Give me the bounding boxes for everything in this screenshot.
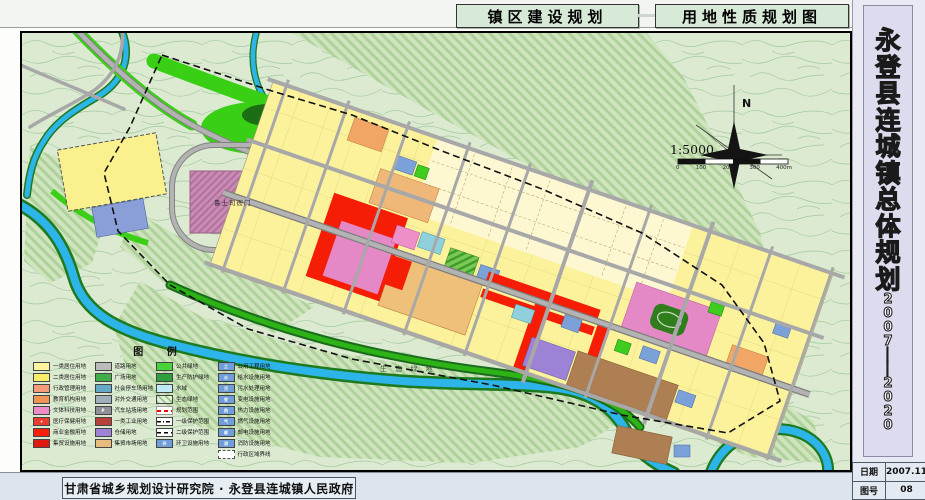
- legend-item: 商业金融用地: [33, 427, 93, 438]
- legend-item-label: 给水设施用地: [238, 375, 271, 381]
- legend-swatch-mark: 消: [224, 442, 228, 446]
- eco-green-label: 生 态 绿 地: [380, 364, 436, 373]
- legend-swatch: [33, 384, 50, 393]
- sidebar-title-char: 体: [875, 214, 900, 241]
- title-tab2-label: 用地性质规划图: [682, 6, 822, 27]
- legend-item: 消消防设施用地: [218, 438, 278, 449]
- legend-item-label: 集贸市场用地: [115, 441, 148, 447]
- legend-item: 生产防护绿地: [156, 372, 216, 383]
- sidebar-year-char: 0: [883, 321, 892, 335]
- date-value: 2007.11: [886, 463, 925, 481]
- sidebar-title-char: 县: [875, 81, 900, 108]
- sidebar-year-char: 2: [883, 405, 892, 419]
- scalebar-tick-label: 200: [723, 165, 734, 171]
- legend-item-label: 公共绿地: [176, 364, 198, 370]
- legend-item-label: 汽车站场用地: [115, 408, 148, 414]
- legend-item: 一级保护范围: [156, 416, 216, 427]
- legend-swatch: [33, 439, 50, 448]
- legend-item: 水域: [156, 383, 216, 394]
- legend-swatch: [33, 373, 50, 382]
- yamen-label: 鲁土司衙门: [214, 198, 252, 207]
- legend-swatch: +: [33, 417, 50, 426]
- legend-item-label: 水域: [176, 386, 187, 392]
- tab-connector: [637, 14, 655, 17]
- legend-item: 对外交通用地: [95, 394, 155, 405]
- sidebar-year-char: 2: [883, 377, 892, 391]
- legend-swatch: 变: [218, 395, 235, 404]
- legend-swatch: [156, 395, 173, 404]
- legend-item-label: 规划范围: [176, 408, 198, 414]
- sidebar-year-char: 0: [883, 391, 892, 405]
- legend-item-label: 变电设施用地: [238, 397, 271, 403]
- legend-item-label: 邮电设施用地: [238, 430, 271, 436]
- sidebar-title-char: 镇: [875, 161, 900, 188]
- legend-swatch: 环: [156, 439, 173, 448]
- legend: 图 例 一类居住用地二类居住用地行政管理用地教育机构用地文体科技用地+医疗保健用…: [33, 343, 277, 460]
- legend-item-label: 行政管理用地: [53, 386, 86, 392]
- legend-item-label: 污水处理用地: [238, 386, 271, 392]
- legend-item: 行政区域界线: [218, 449, 278, 460]
- legend-swatch: [95, 439, 112, 448]
- scalebar-tick-label: 400m: [776, 165, 792, 171]
- scalebar-tick-label: 0: [676, 165, 680, 171]
- date-figure-table: 日期 2007.11 图号 08: [852, 462, 925, 500]
- drawing-title-vertical: 永登县连城镇总体规划: [875, 28, 900, 293]
- legend-swatch: [95, 362, 112, 371]
- legend-title: 图 例: [33, 343, 277, 358]
- title-tab1-label: 镇区建设规划: [487, 6, 607, 27]
- legend-column-3: 公共绿地生产防护绿地水域生态绿地规划范围一级保护范围二级保护范围环环卫设施用地: [156, 361, 216, 460]
- legend-item-label: 行政区域界线: [238, 452, 271, 458]
- legend-swatch: [156, 362, 173, 371]
- legend-swatch: 气: [218, 417, 235, 426]
- sidebar-title-char: 划: [875, 267, 900, 294]
- legend-swatch-mark: P: [102, 409, 105, 413]
- legend-swatch: [95, 428, 112, 437]
- legend-item: 水给水设施用地: [218, 372, 278, 383]
- legend-swatch-mark: 变: [224, 398, 228, 402]
- legend-item-label: 环卫设施用地: [176, 441, 209, 447]
- legend-swatch: 工: [218, 362, 235, 371]
- legend-item: 广场用地: [95, 372, 155, 383]
- legend-item-label: 二类居住用地: [53, 375, 86, 381]
- legend-swatch: [156, 417, 173, 426]
- legend-item-label: 燃气设施用地: [238, 419, 271, 425]
- legend-item-label: 商业金融用地: [53, 430, 86, 436]
- figure-number-label: 图号: [853, 482, 885, 500]
- legend-item: 集贸设施用地: [33, 438, 93, 449]
- legend-swatch: [33, 428, 50, 437]
- legend-item: 二级保护范围: [156, 427, 216, 438]
- legend-item-label: 对外交通用地: [115, 397, 148, 403]
- legend-swatch: 污: [218, 384, 235, 393]
- legend-swatch: 水: [218, 373, 235, 382]
- legend-item-label: 公用工程用地: [238, 364, 271, 370]
- legend-item-label: 一级保护范围: [176, 419, 209, 425]
- legend-swatch: 热: [218, 406, 235, 415]
- legend-swatch: [218, 450, 235, 459]
- legend-swatch: [95, 417, 112, 426]
- legend-item: 集贸市场用地: [95, 438, 155, 449]
- legend-item: 一类居住用地: [33, 361, 93, 372]
- legend-item: 行政管理用地: [33, 383, 93, 394]
- legend-item-label: 生产防护绿地: [176, 375, 209, 381]
- legend-swatch: [95, 373, 112, 382]
- legend-item: 二类居住用地: [33, 372, 93, 383]
- legend-item: 社会停车场用地: [95, 383, 155, 394]
- legend-item: 道路用地: [95, 361, 155, 372]
- legend-item: 文体科技用地: [33, 405, 93, 416]
- legend-item-label: 道路用地: [115, 364, 137, 370]
- sidebar-year-char: 0: [883, 419, 892, 433]
- legend-item: 工公用工程用地: [218, 361, 278, 372]
- scale-text: 1:5000: [670, 142, 714, 157]
- scalebar-labels: 0100200300400m: [676, 165, 792, 171]
- legend-swatch: [95, 395, 112, 404]
- legend-item-label: 一类工业用地: [115, 419, 148, 425]
- legend-swatch: P: [95, 406, 112, 415]
- legend-item: +医疗保健用地: [33, 416, 93, 427]
- sidebar-title-char: 登: [875, 55, 900, 82]
- legend-swatch: [95, 384, 112, 393]
- legend-item: 公共绿地: [156, 361, 216, 372]
- sidebar-year-char: 2: [883, 293, 892, 307]
- plan-period-vertical: 2007││2020: [883, 293, 892, 433]
- legend-item: 规划范围: [156, 405, 216, 416]
- legend-swatch: 邮: [218, 428, 235, 437]
- legend-item: 邮邮电设施用地: [218, 427, 278, 438]
- sidebar-title-char: 城: [875, 134, 900, 161]
- legend-item-label: 消防设施用地: [238, 441, 271, 447]
- title-tab-construction-plan: 镇区建设规划: [456, 4, 639, 28]
- scalebar-tick-label: 100: [696, 165, 707, 171]
- legend-item-label: 医疗保健用地: [53, 419, 86, 425]
- sidebar-title-char: 规: [875, 240, 900, 267]
- title-tab-landuse-map: 用地性质规划图: [655, 4, 849, 28]
- legend-item: 变变电设施用地: [218, 394, 278, 405]
- north-label: N: [742, 97, 751, 110]
- legend-swatch: [33, 362, 50, 371]
- legend-swatch: [156, 428, 173, 437]
- legend-column-2: 道路用地广场用地社会停车场用地对外交通用地P汽车站场用地一类工业用地仓储用地集贸…: [95, 361, 155, 460]
- legend-item-label: 热力设施用地: [238, 408, 271, 414]
- legend-swatch: [33, 395, 50, 404]
- legend-swatch-mark: 环: [163, 442, 167, 446]
- legend-column-4: 工公用工程用地水给水设施用地污污水处理用地变变电设施用地热热力设施用地气燃气设施…: [218, 361, 278, 460]
- legend-swatch-mark: 工: [224, 365, 228, 369]
- date-label: 日期: [853, 463, 885, 481]
- sidebar-title-char: 总: [875, 187, 900, 214]
- figure-number-value: 08: [886, 482, 925, 500]
- drawing-title-panel: 永登县连城镇总体规划 2007││2020: [863, 5, 913, 457]
- legend-item-label: 广场用地: [115, 375, 137, 381]
- legend-swatch-mark: 污: [224, 387, 228, 391]
- scalebar-tick-label: 300: [749, 165, 760, 171]
- legend-swatch-mark: 邮: [224, 431, 228, 435]
- legend-swatch: [33, 406, 50, 415]
- legend-column-1: 一类居住用地二类居住用地行政管理用地教育机构用地文体科技用地+医疗保健用地商业金…: [33, 361, 93, 460]
- legend-item: 环环卫设施用地: [156, 438, 216, 449]
- legend-swatch: 消: [218, 439, 235, 448]
- legend-swatch-mark: 水: [224, 376, 228, 380]
- legend-item-label: 仓储用地: [115, 430, 137, 436]
- legend-item: 气燃气设施用地: [218, 416, 278, 427]
- legend-swatch-mark: +: [40, 420, 43, 424]
- sidebar-title-char: 连: [875, 108, 900, 135]
- page: 镇区建设规划 用地性质规划图: [0, 0, 925, 500]
- legend-item-label: 生态绿地: [176, 397, 198, 403]
- legend-item: 一类工业用地: [95, 416, 155, 427]
- legend-item-label: 教育机构用地: [53, 397, 86, 403]
- sidebar-year-char: 7: [883, 335, 892, 349]
- legend-item-label: 文体科技用地: [53, 408, 86, 414]
- legend-swatch-mark: 热: [224, 409, 228, 413]
- legend-item: 污污水处理用地: [218, 383, 278, 394]
- legend-swatch: [156, 384, 173, 393]
- credit-text: 甘肃省城乡规划设计研究院 · 永登县连城镇人民政府: [64, 480, 353, 497]
- sidebar-year-char: 0: [883, 307, 892, 321]
- legend-swatch-mark: 气: [224, 420, 228, 424]
- legend-swatch: [156, 406, 173, 415]
- legend-item-label: 二级保护范围: [176, 430, 209, 436]
- sidebar-title-char: 永: [875, 28, 900, 55]
- legend-item: 热热力设施用地: [218, 405, 278, 416]
- legend-columns: 一类居住用地二类居住用地行政管理用地教育机构用地文体科技用地+医疗保健用地商业金…: [33, 361, 277, 460]
- legend-item-label: 一类居住用地: [53, 364, 86, 370]
- legend-item-label: 集贸设施用地: [53, 441, 86, 447]
- legend-item: 教育机构用地: [33, 394, 93, 405]
- title-block-sidebar: 永登县连城镇总体规划 2007││2020: [852, 0, 925, 500]
- legend-item: P汽车站场用地: [95, 405, 155, 416]
- legend-item-label: 社会停车场用地: [115, 386, 154, 392]
- legend-item: 仓储用地: [95, 427, 155, 438]
- legend-item: 生态绿地: [156, 394, 216, 405]
- credit-box: 甘肃省城乡规划设计研究院 · 永登县连城镇人民政府: [62, 477, 356, 499]
- sidebar-year-char: │: [883, 363, 892, 377]
- legend-swatch: [156, 373, 173, 382]
- sidebar-year-char: │: [883, 349, 892, 363]
